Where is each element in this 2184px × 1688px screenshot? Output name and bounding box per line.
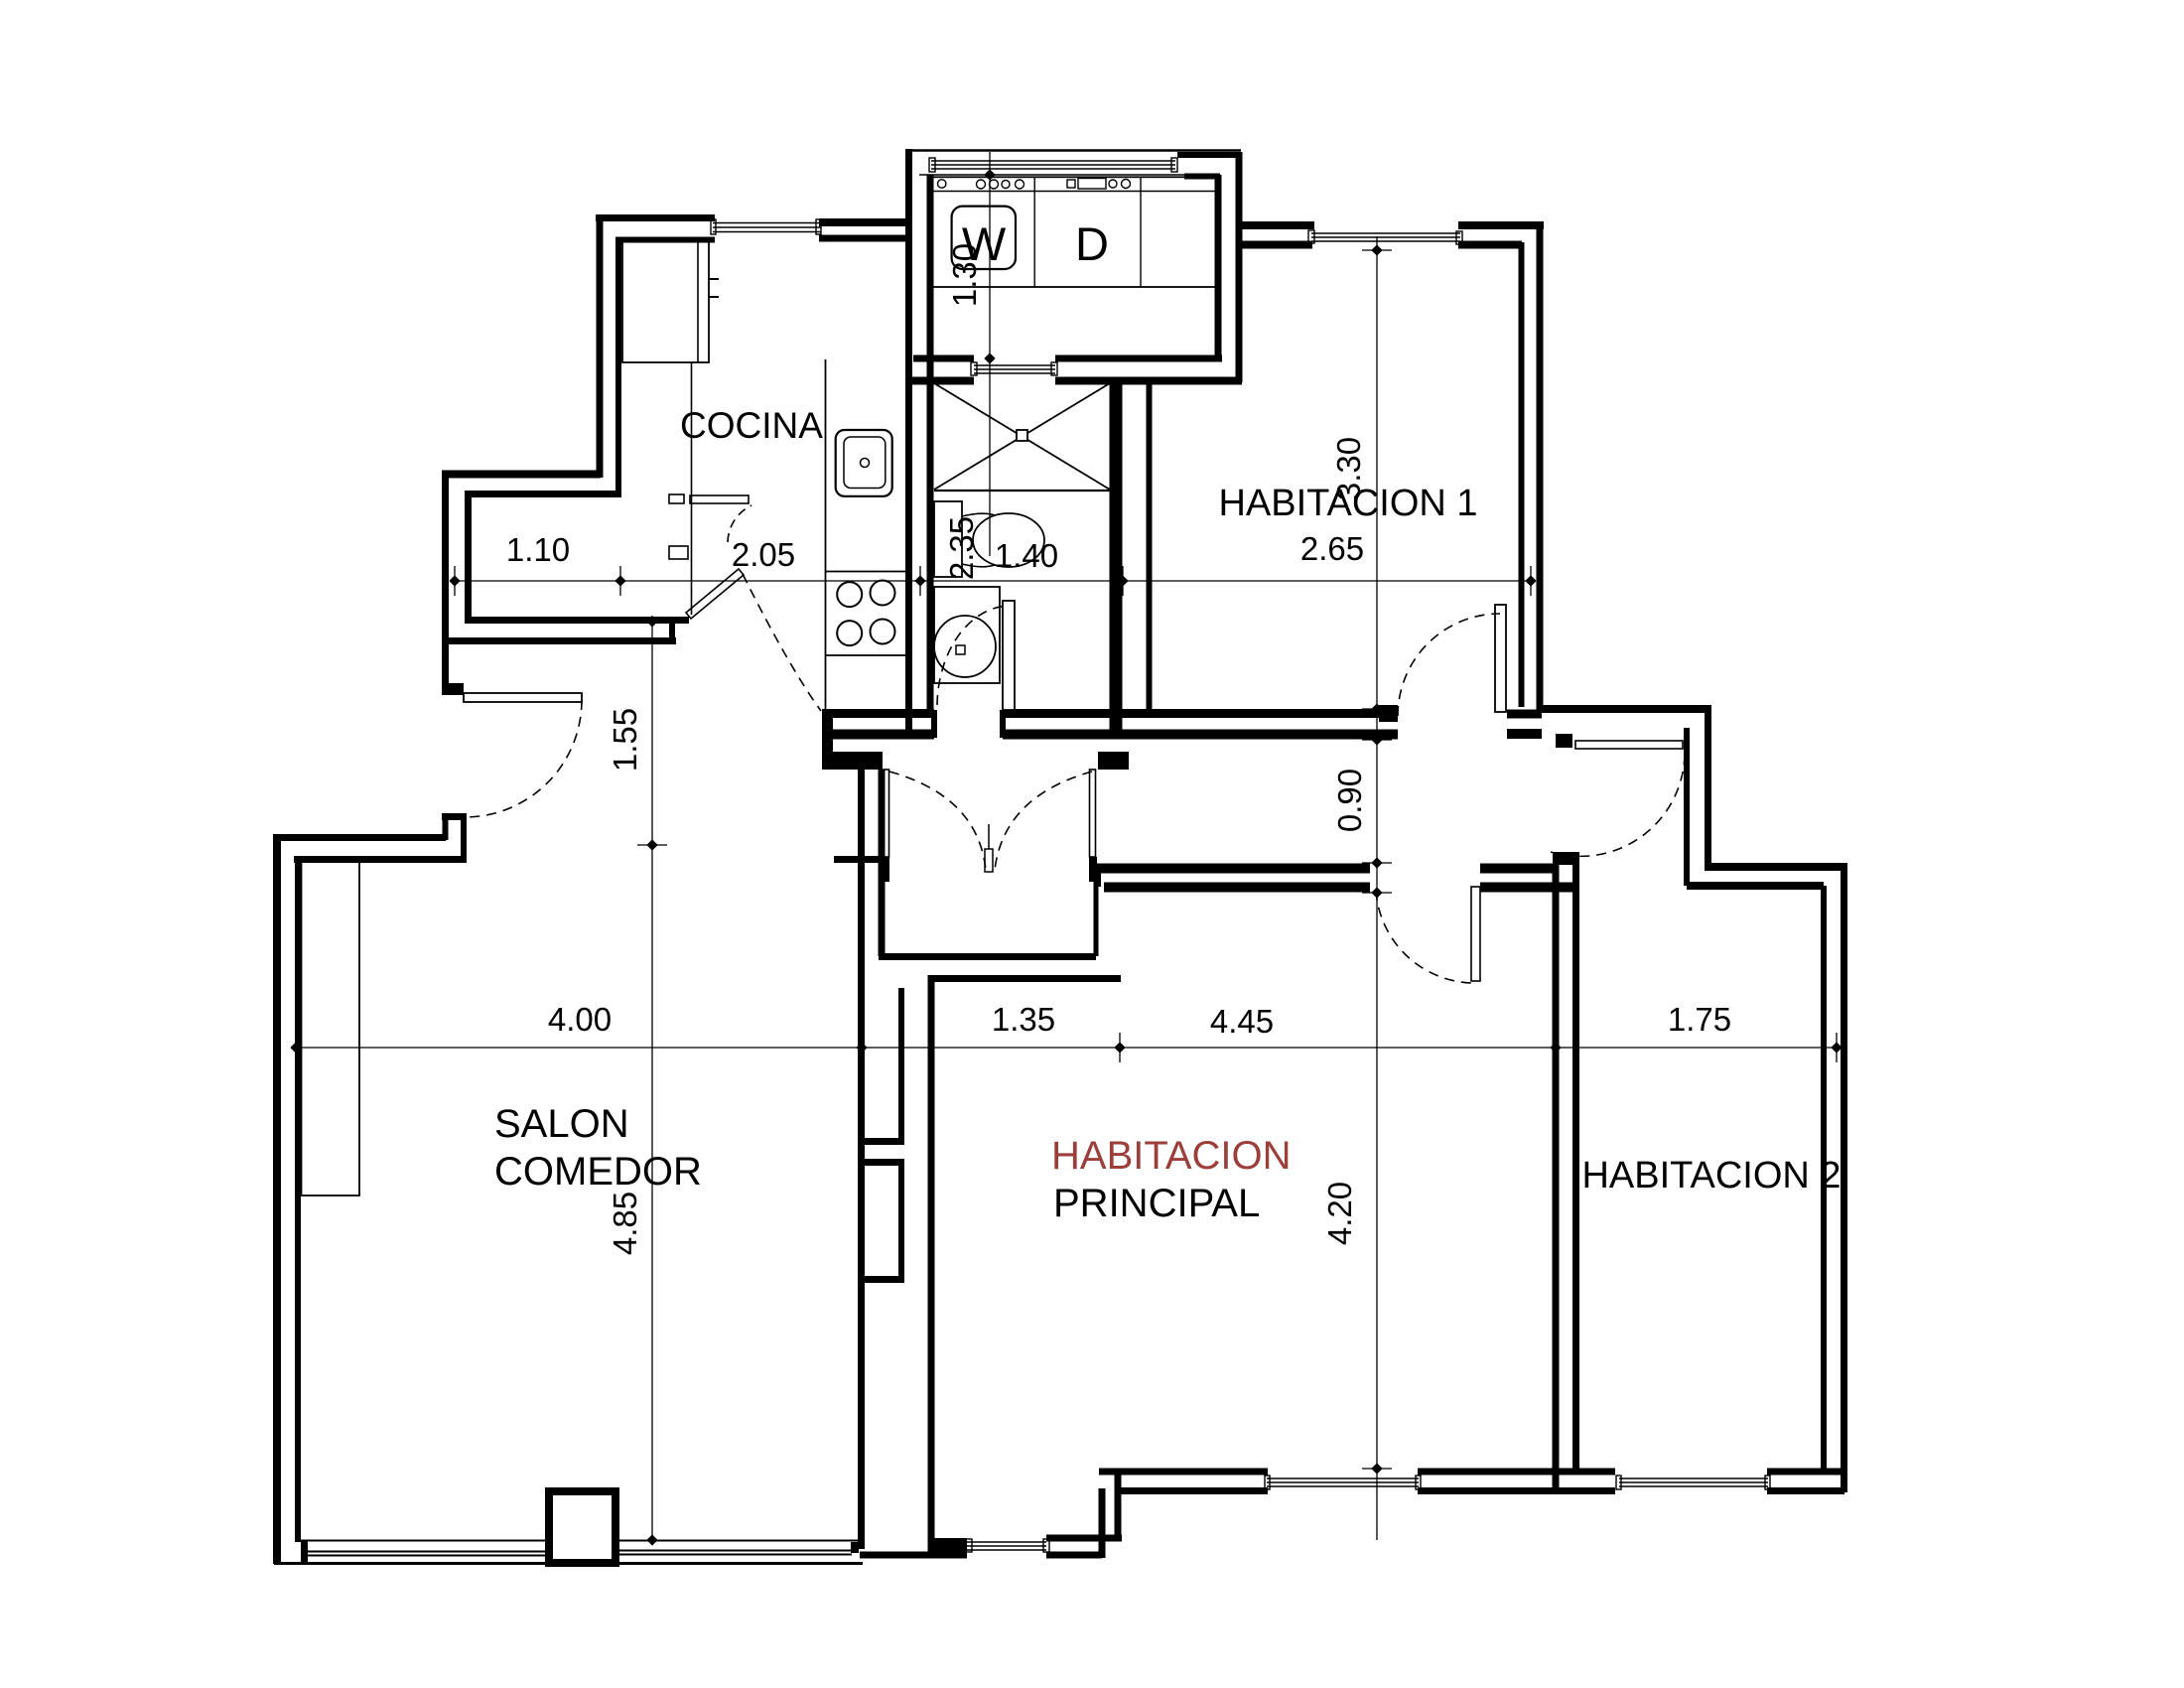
svg-text:1.35: 1.35 xyxy=(992,1001,1055,1038)
svg-text:HABITACION: HABITACION xyxy=(1051,1134,1292,1178)
svg-text:HABITACION 2: HABITACION 2 xyxy=(1581,1155,1841,1196)
svg-text:SALON: SALON xyxy=(494,1102,629,1146)
svg-text:2.05: 2.05 xyxy=(732,536,795,573)
svg-text:COCINA: COCINA xyxy=(680,405,823,446)
svg-text:1.30: 1.30 xyxy=(946,243,983,307)
svg-text:1.10: 1.10 xyxy=(506,531,570,568)
svg-text:0.90: 0.90 xyxy=(1331,769,1368,832)
svg-text:D: D xyxy=(1075,217,1109,270)
svg-text:1.40: 1.40 xyxy=(995,537,1058,574)
svg-text:1.75: 1.75 xyxy=(1668,1001,1731,1038)
svg-text:4.00: 4.00 xyxy=(548,1001,612,1038)
svg-text:COMEDOR: COMEDOR xyxy=(494,1150,702,1194)
svg-text:3.30: 3.30 xyxy=(1330,437,1367,500)
svg-text:4.85: 4.85 xyxy=(607,1192,643,1255)
svg-text:2.35: 2.35 xyxy=(943,516,980,580)
svg-text:4.45: 4.45 xyxy=(1210,1003,1274,1040)
svg-text:2.65: 2.65 xyxy=(1300,530,1364,567)
svg-text:1.55: 1.55 xyxy=(607,708,643,772)
svg-text:4.20: 4.20 xyxy=(1321,1182,1358,1245)
svg-text:PRINCIPAL: PRINCIPAL xyxy=(1053,1182,1260,1225)
